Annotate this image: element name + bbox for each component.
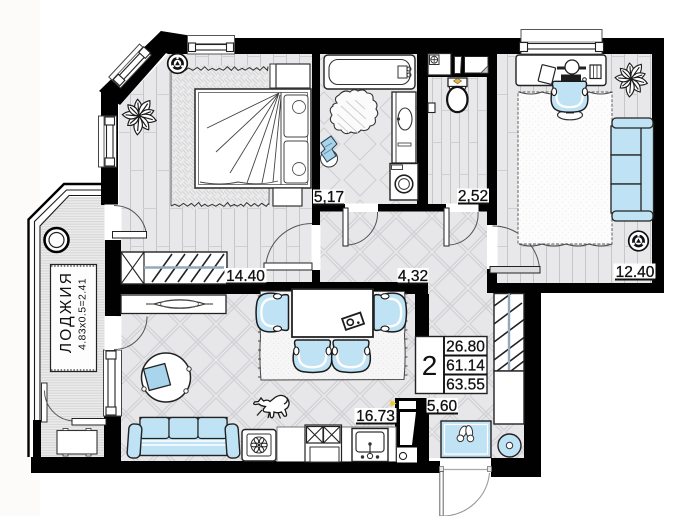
svg-text:2,52: 2,52 — [458, 188, 488, 205]
svg-text:16.73: 16.73 — [356, 408, 395, 425]
svg-text:5,17: 5,17 — [314, 189, 344, 206]
svg-text:ЛОДЖИЯ: ЛОДЖИЯ — [58, 271, 75, 353]
svg-text:4.83х0.5=2.41: 4.83х0.5=2.41 — [77, 278, 89, 350]
svg-text:61.14: 61.14 — [446, 358, 485, 375]
svg-text:4,32: 4,32 — [398, 268, 428, 285]
svg-text:5,60: 5,60 — [427, 398, 458, 415]
svg-text:26.80: 26.80 — [446, 339, 485, 356]
svg-text:63.55: 63.55 — [446, 377, 485, 394]
svg-text:12.40: 12.40 — [616, 264, 655, 281]
svg-text:2: 2 — [422, 350, 438, 381]
svg-text:14.40: 14.40 — [226, 268, 265, 285]
